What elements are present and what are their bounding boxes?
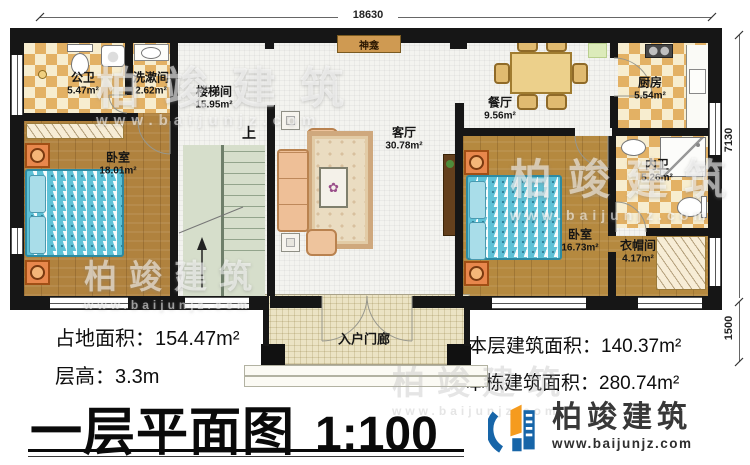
- room-label-kitchen: 厨房 5.54m²: [634, 76, 666, 101]
- floorplan-canvas: 18630 7130 1500 ✿: [0, 0, 750, 465]
- room-name: 公卫: [67, 71, 99, 85]
- room-label-private-bath: 内卫 5.26m²: [641, 158, 673, 183]
- room-label-living: 客厅 30.78m²: [385, 126, 422, 151]
- room-label-bedroom-right: 卧室 16.73m²: [561, 228, 598, 253]
- stairs-up-label: 上: [242, 123, 256, 143]
- room-name: 卧室: [561, 228, 598, 242]
- shrine-marker: 神龛: [337, 35, 401, 53]
- room-name: 入户门廊: [338, 333, 390, 348]
- logo-icon: [488, 397, 544, 457]
- title-text: 一层平面图: [30, 404, 295, 462]
- room-name: 客厅: [385, 126, 422, 140]
- room-area: 18.01m²: [99, 165, 136, 177]
- logo-name: 柏竣建筑: [552, 403, 693, 433]
- drawing-title: 一层平面图1:100: [30, 390, 438, 465]
- room-area: 9.56m²: [484, 110, 516, 122]
- room-name: 卧室: [99, 151, 136, 165]
- room-area: 4.17m²: [620, 253, 656, 265]
- title-scale: 1:100: [315, 408, 438, 461]
- company-logo: 柏竣建筑 www.baijunjz.com: [488, 397, 693, 457]
- logo-url: www.baijunjz.com: [552, 436, 693, 451]
- room-area: 5.47m²: [67, 85, 99, 97]
- room-label-porch: 入户门廊: [338, 333, 390, 348]
- room-label-cloakroom: 衣帽间 4.17m²: [620, 239, 656, 264]
- room-name: 楼梯间: [195, 85, 232, 99]
- room-name: 洗漱间: [133, 71, 169, 85]
- room-name: 内卫: [641, 158, 673, 172]
- room-label-public-bath: 公卫 5.47m²: [67, 71, 99, 96]
- room-label-bedroom-left: 卧室 18.01m²: [99, 151, 136, 176]
- room-area: 2.62m²: [133, 85, 169, 97]
- room-area: 15.95m²: [195, 99, 232, 111]
- room-area: 30.78m²: [385, 140, 422, 152]
- logo-text-block: 柏竣建筑 www.baijunjz.com: [552, 403, 693, 451]
- room-name: 衣帽间: [620, 239, 656, 253]
- room-label-washroom: 洗漱间 2.62m²: [133, 71, 169, 96]
- room-name: 厨房: [634, 76, 666, 90]
- room-name: 餐厅: [484, 96, 516, 110]
- room-label-dining: 餐厅 9.56m²: [484, 96, 516, 121]
- room-area: 5.54m²: [634, 90, 666, 102]
- room-label-stairwell: 楼梯间 15.95m²: [195, 85, 232, 110]
- room-area: 5.26m²: [641, 172, 673, 184]
- room-area: 16.73m²: [561, 242, 598, 254]
